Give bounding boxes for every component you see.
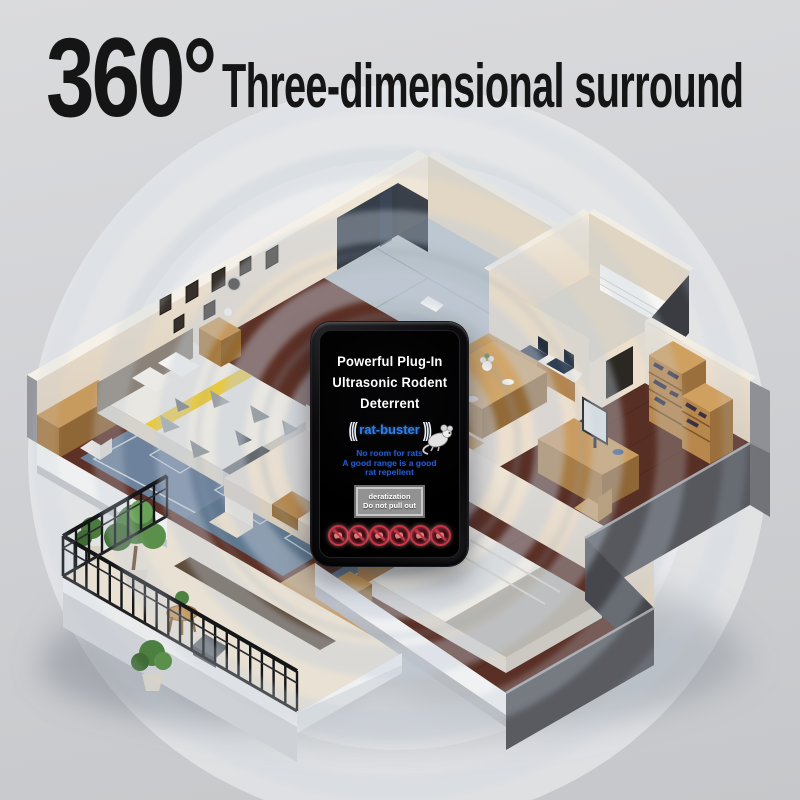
warning-label: deratization Do not pull out: [356, 487, 423, 516]
tagline-line-3: rat repellent: [342, 468, 436, 478]
mouse-cartoon-icon: [419, 421, 457, 457]
no-pest-icon: [391, 527, 408, 544]
no-pest-icon: [350, 527, 367, 544]
headline-360: 360°: [46, 22, 214, 134]
warning-line-1: deratization: [363, 492, 416, 501]
ultrasonic-repeller-device: Powerful Plug-In Ultrasonic Rodent Deter…: [311, 322, 468, 566]
headline: 360° Three-dimensional surround: [46, 22, 800, 134]
heading-line-1: Powerful Plug-In: [332, 351, 447, 372]
pest-icon-row: [330, 527, 450, 544]
no-pest-icon: [371, 527, 388, 544]
device-face: Powerful Plug-In Ultrasonic Rodent Deter…: [319, 330, 460, 558]
heading-line-3: Deterrent: [332, 393, 447, 414]
no-pest-icon: [330, 527, 347, 544]
brand-name: rat-buster: [359, 422, 420, 437]
headline-text: Three-dimensional surround: [222, 56, 743, 118]
no-pest-icon: [432, 527, 449, 544]
sound-wave-left-icon: (((: [349, 418, 357, 442]
right-corner-side: [750, 381, 770, 453]
device-heading: Powerful Plug-In Ultrasonic Rodent Deter…: [332, 351, 447, 414]
warning-line-2: Do not pull out: [363, 501, 416, 510]
no-pest-icon: [412, 527, 429, 544]
product-ad-image: 360° Three-dimensional surround Powerful…: [0, 0, 800, 800]
heading-line-2: Ultrasonic Rodent: [332, 372, 447, 393]
